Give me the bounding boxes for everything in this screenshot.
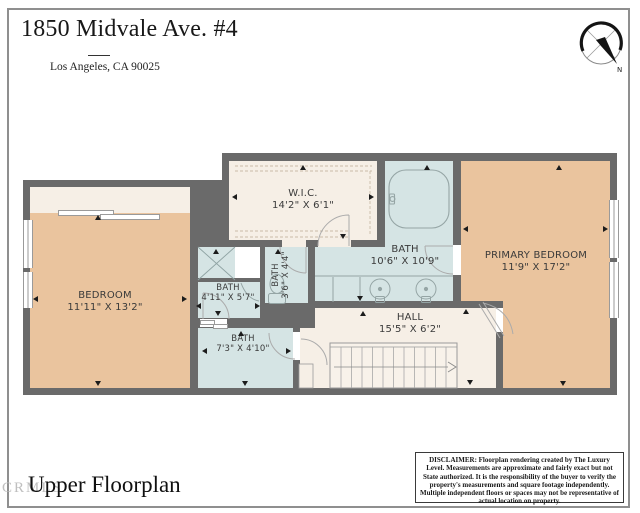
dim-marker	[463, 226, 468, 232]
page-subtitle: Los Angeles, CA 90025	[50, 61, 160, 73]
dim-marker	[238, 331, 244, 336]
page-title: 1850 Midvale Ave. #4	[21, 16, 238, 43]
room-label-bath-main: BATH 10'6" X 10'9"	[371, 244, 440, 267]
dim-marker	[360, 311, 366, 316]
dim-marker	[603, 226, 608, 232]
dim-marker	[213, 249, 219, 254]
bedroom-window	[23, 272, 33, 308]
dim-marker	[560, 381, 566, 386]
dim-marker	[255, 303, 260, 309]
title-divider	[88, 55, 110, 56]
dim-marker	[95, 215, 101, 220]
wall	[453, 161, 461, 308]
dim-marker	[300, 165, 306, 170]
dim-marker	[95, 381, 101, 386]
room-label-bath-small: BATH 4'11" X 5'7"	[201, 283, 254, 303]
compass-needle	[596, 37, 617, 64]
wall	[23, 388, 617, 395]
wall	[222, 153, 617, 161]
room-label-bedroom: BEDROOM 11'11" X 13'2"	[67, 290, 142, 313]
compass-north-label: N	[617, 66, 622, 74]
primary-window	[609, 262, 619, 318]
room-label-bath-vertical: BATH 3'6" X 4'4"	[271, 251, 291, 299]
bath-lower-doorway	[293, 332, 300, 360]
wall	[496, 330, 503, 388]
compass-arc	[581, 23, 621, 51]
dim-marker	[33, 296, 38, 302]
bath-pocket-door-panel	[213, 324, 228, 329]
floorplan-page: 1850 Midvale Ave. #4 Los Angeles, CA 900…	[0, 0, 640, 513]
wall	[190, 247, 198, 388]
bath-main-doorway	[453, 245, 461, 275]
primary-doorway	[496, 308, 503, 332]
wall	[315, 301, 503, 308]
dim-marker	[215, 311, 221, 316]
dim-marker	[357, 296, 363, 301]
room-label-primary: PRIMARY BEDROOM 11'9" X 17'2"	[485, 250, 587, 273]
bedroom-window	[23, 220, 33, 268]
dim-marker	[232, 194, 237, 200]
primary-window	[609, 200, 619, 258]
dim-marker	[424, 165, 430, 170]
dim-marker	[369, 194, 374, 200]
wall	[377, 161, 385, 246]
dim-marker	[196, 303, 201, 309]
wall	[190, 180, 229, 247]
room-bath-main-tub-floor	[385, 161, 453, 246]
closet-sliding-door	[100, 214, 160, 220]
dim-marker	[202, 348, 207, 354]
dim-marker	[242, 381, 248, 386]
dim-marker	[286, 348, 291, 354]
room-label-bath-lower: BATH 7'3" X 4'10"	[216, 334, 269, 354]
wall	[260, 303, 315, 328]
room-label-wic: W.I.C. 14'2" X 6'1"	[272, 188, 334, 211]
wic-doorway	[318, 240, 351, 247]
dim-marker	[463, 309, 469, 314]
dim-marker	[275, 249, 281, 254]
compass-icon: N	[574, 14, 630, 78]
dim-marker	[467, 380, 473, 385]
floorplan-level-title: Upper Floorplan	[28, 472, 181, 498]
wall	[198, 278, 260, 282]
dim-marker	[340, 234, 346, 239]
dim-marker	[556, 165, 562, 170]
dim-marker	[182, 296, 187, 302]
bath-vertical-doorway	[282, 240, 306, 247]
room-label-hall: HALL 15'5" X 6'2"	[379, 312, 441, 335]
disclaimer-box: DISCLAIMER: Floorplan rendering created …	[415, 452, 624, 503]
wall	[308, 246, 315, 303]
